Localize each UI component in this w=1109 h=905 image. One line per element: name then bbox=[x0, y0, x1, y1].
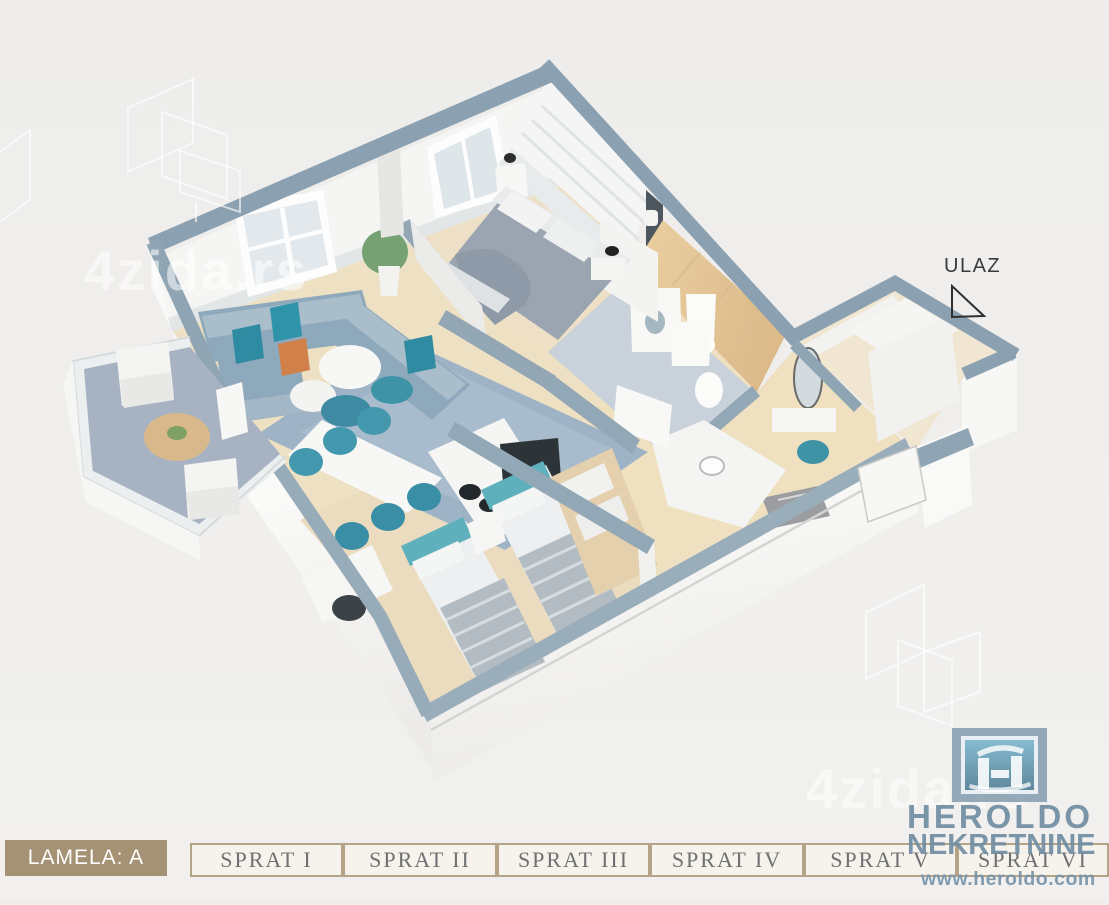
svg-text:ULAZ: ULAZ bbox=[944, 255, 1001, 277]
